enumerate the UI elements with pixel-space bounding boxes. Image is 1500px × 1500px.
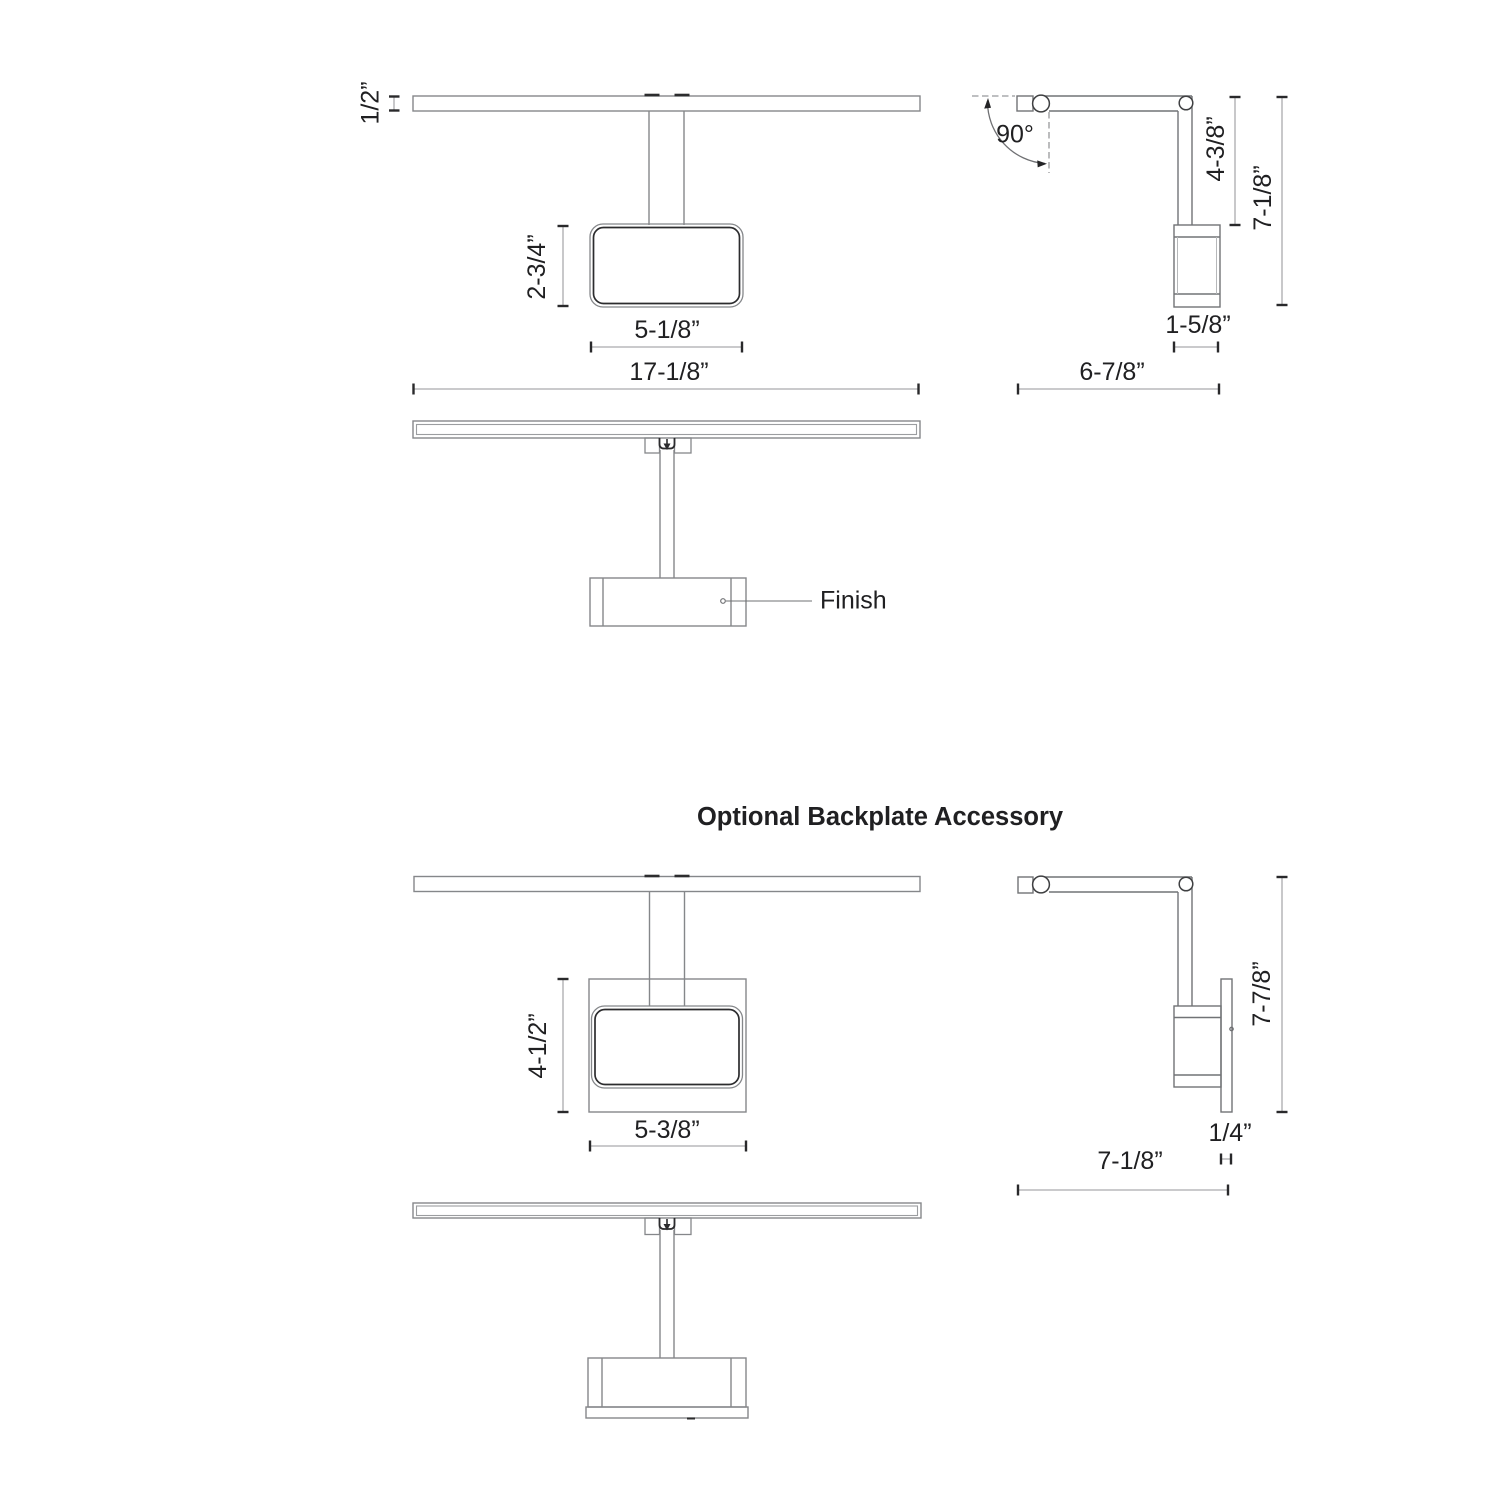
svg-text:1-5/8”: 1-5/8” (1165, 311, 1230, 339)
svg-text:Optional Backplate Accessory: Optional Backplate Accessory (697, 803, 1064, 831)
svg-text:5-1/8”: 5-1/8” (634, 316, 699, 344)
svg-text:4-1/2”: 4-1/2” (524, 1013, 552, 1078)
svg-text:4-3/8”: 4-3/8” (1202, 116, 1230, 181)
svg-text:5-3/8”: 5-3/8” (634, 1116, 699, 1144)
svg-text:1/4”: 1/4” (1208, 1119, 1251, 1147)
svg-text:90°: 90° (996, 121, 1034, 149)
svg-text:6-7/8”: 6-7/8” (1079, 358, 1144, 386)
svg-text:17-1/8”: 17-1/8” (629, 358, 708, 386)
svg-text:2-3/4”: 2-3/4” (523, 234, 551, 299)
svg-text:1/2”: 1/2” (357, 81, 385, 124)
svg-text:Finish: Finish (820, 587, 887, 615)
svg-text:7-1/8”: 7-1/8” (1097, 1147, 1162, 1175)
svg-text:7-1/8”: 7-1/8” (1249, 165, 1277, 230)
svg-text:7-7/8”: 7-7/8” (1248, 961, 1276, 1026)
